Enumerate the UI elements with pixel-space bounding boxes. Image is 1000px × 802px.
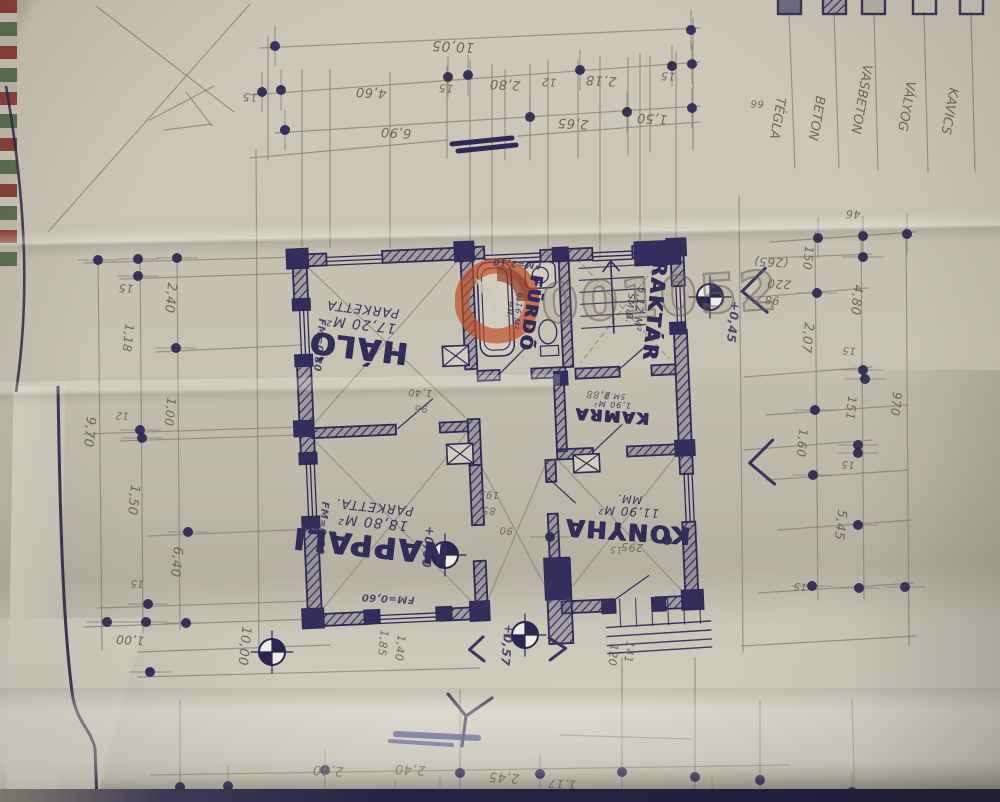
watermark-text: 001052 xyxy=(539,259,780,336)
floorplan-photo: 001052 10,05154,60152,80122,18156,902,65… xyxy=(0,0,1000,802)
flame-icon xyxy=(455,258,539,344)
floorplan-drawing xyxy=(0,0,1000,802)
watermark: 001052 xyxy=(455,258,765,348)
